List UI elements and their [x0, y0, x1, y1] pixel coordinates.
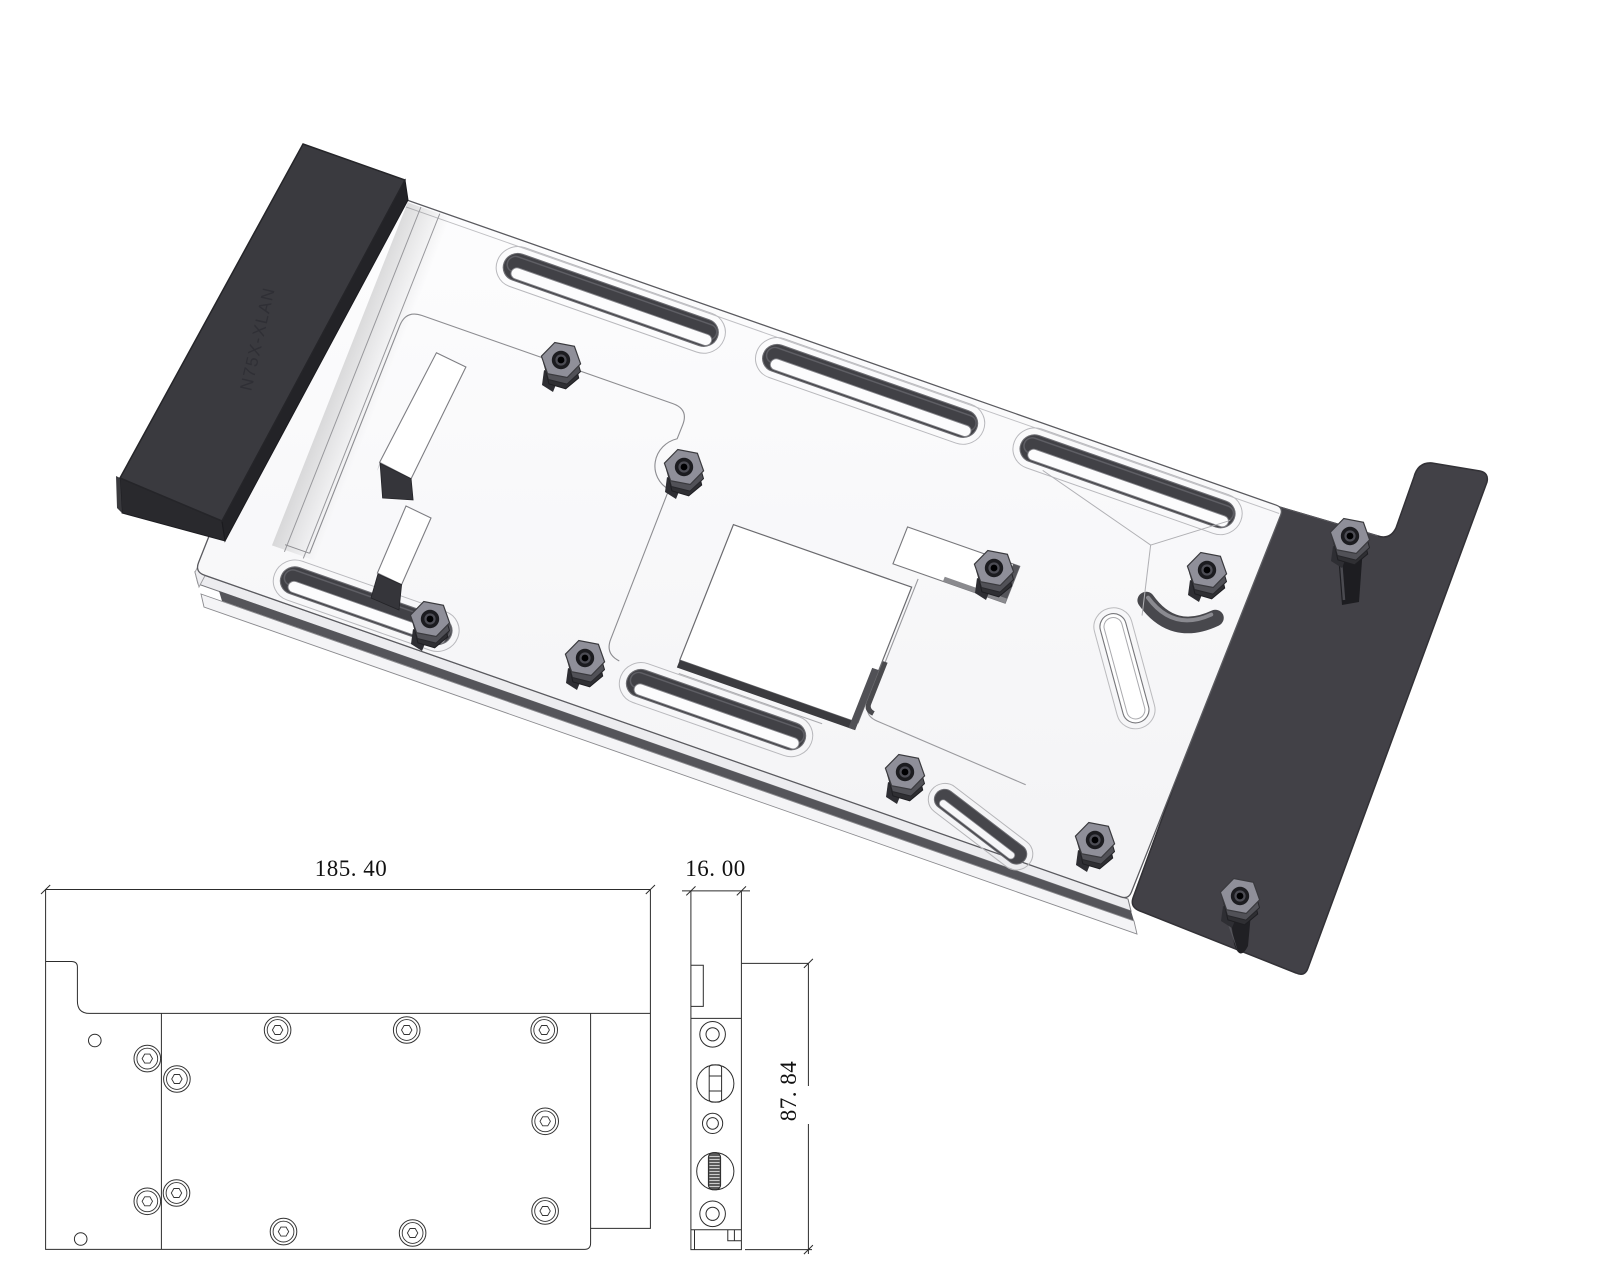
svg-text:185. 40: 185. 40 [315, 856, 388, 881]
svg-text:16. 00: 16. 00 [685, 856, 746, 881]
svg-text:87. 84: 87. 84 [776, 1061, 801, 1122]
